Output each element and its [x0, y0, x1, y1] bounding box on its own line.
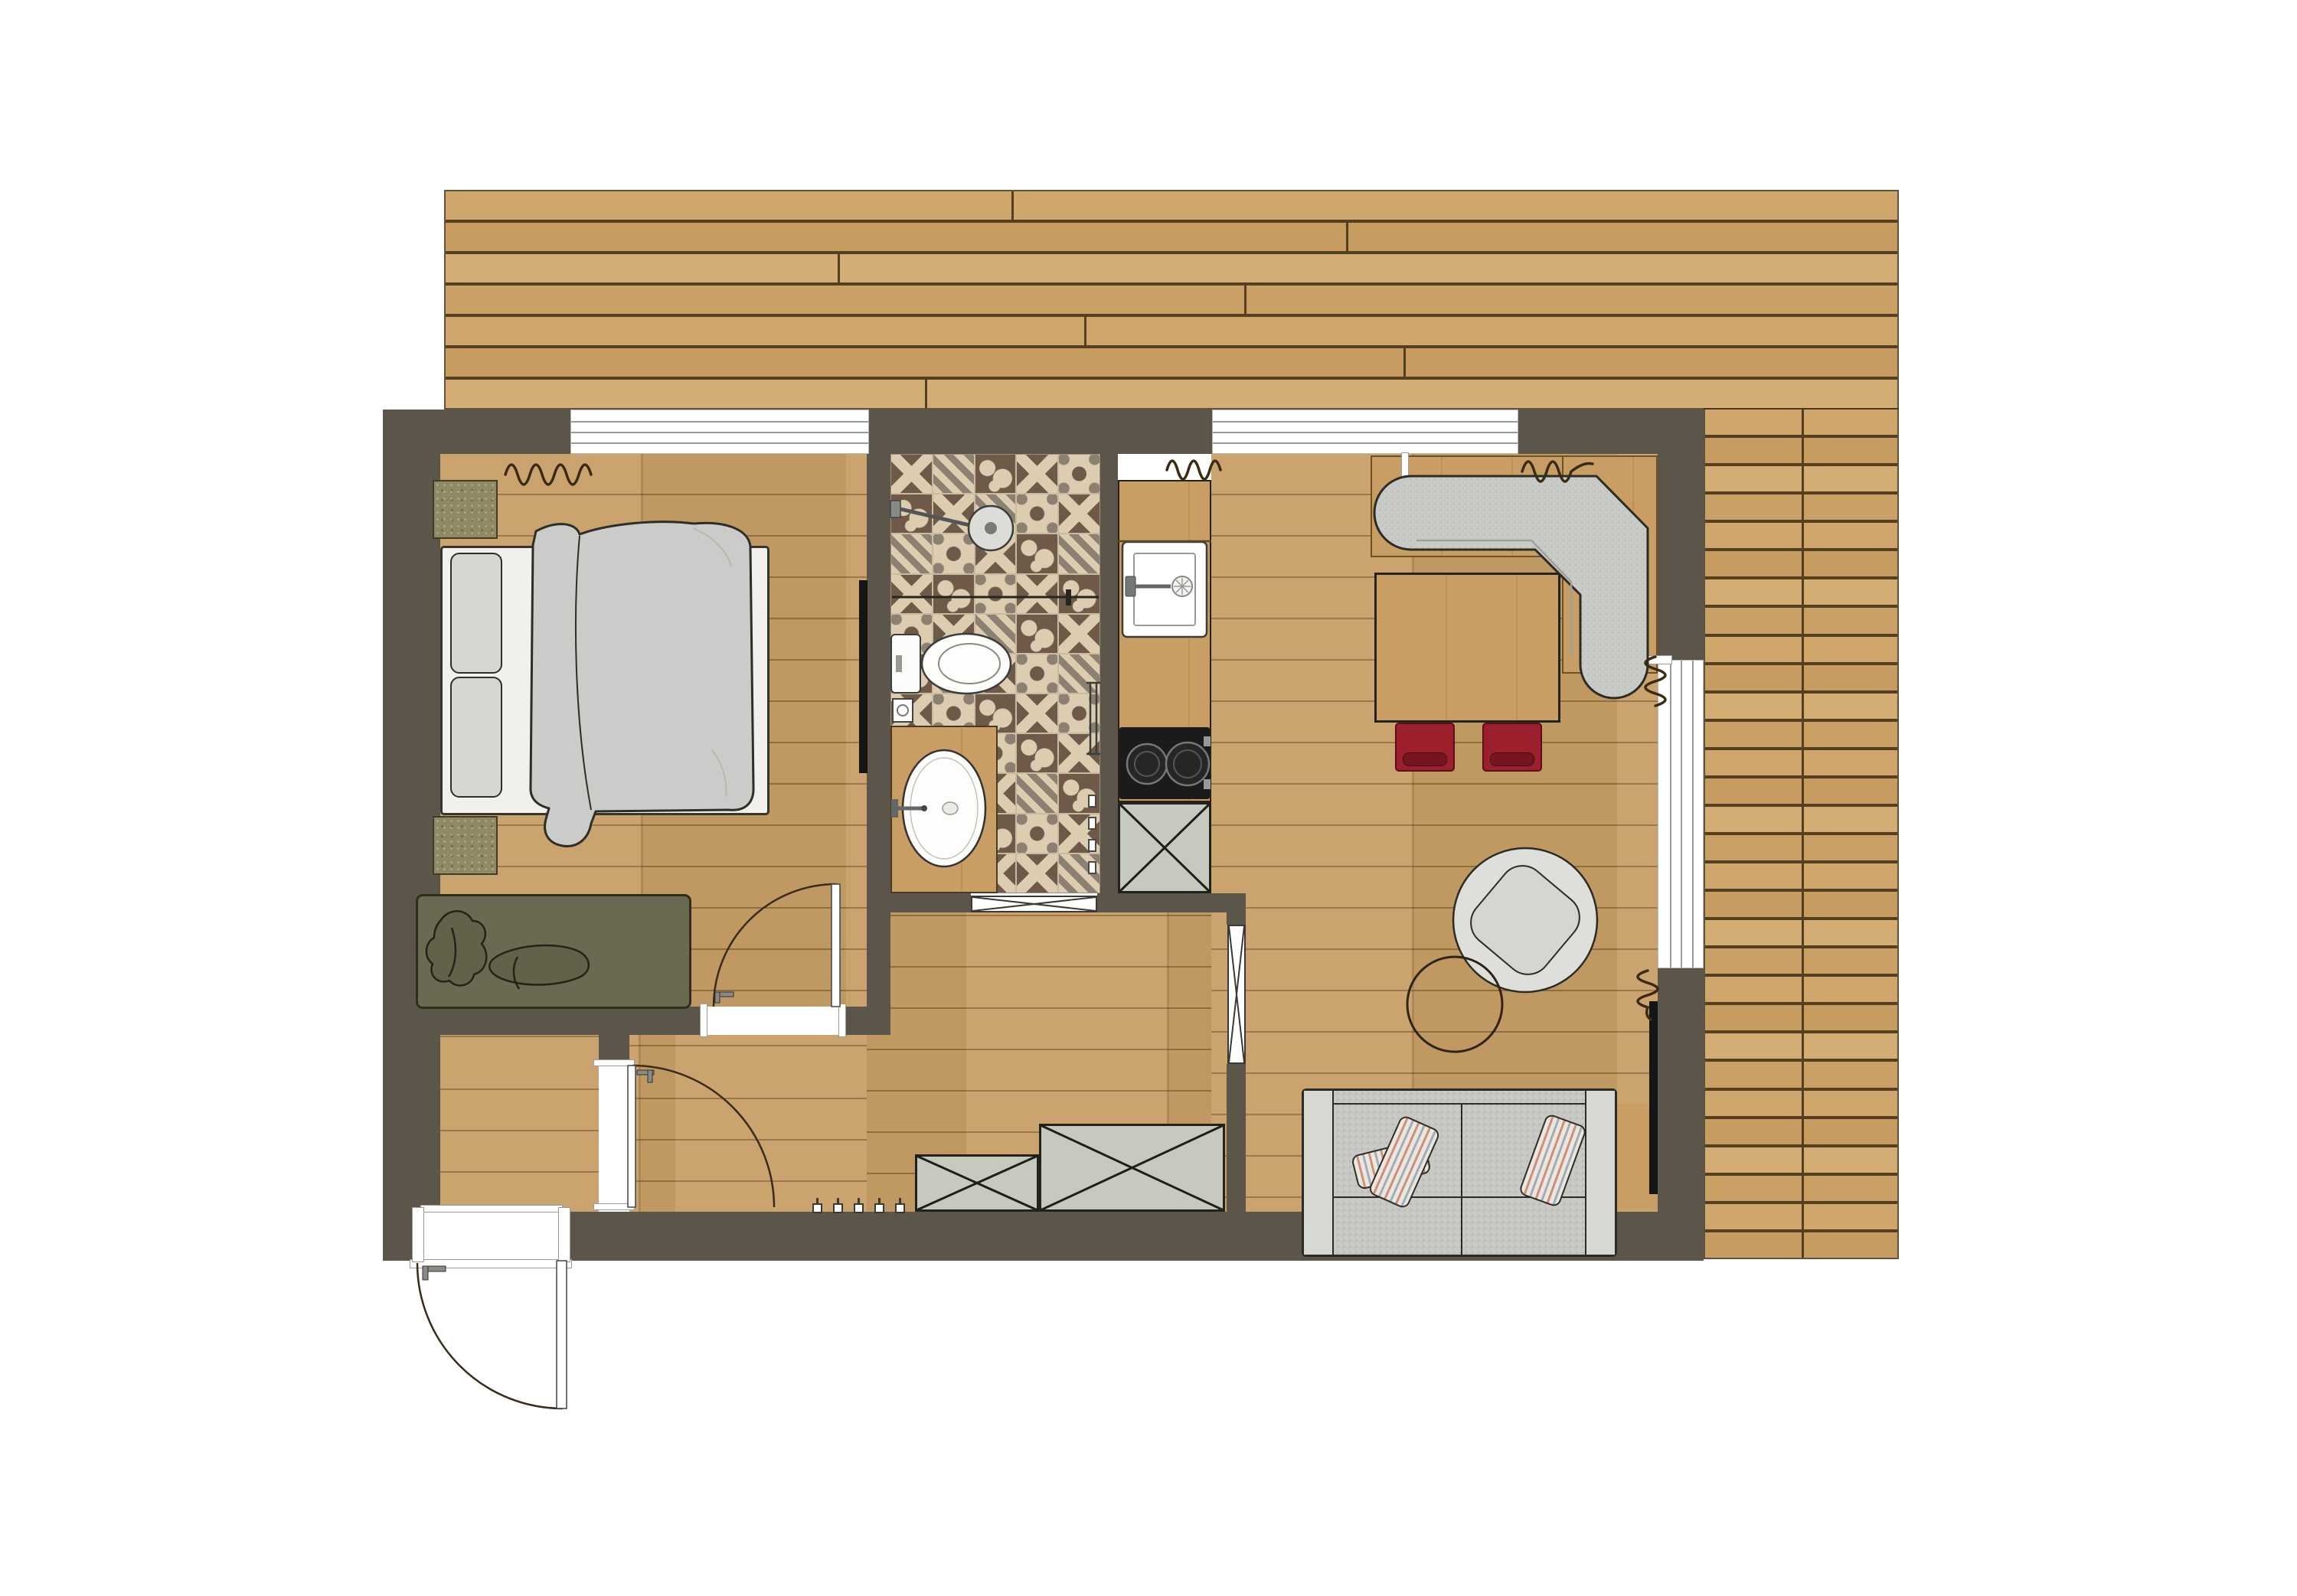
wall-left — [383, 410, 440, 1261]
deck-plank — [446, 223, 1897, 254]
terrace-deck-top — [444, 190, 1899, 410]
deck-plank — [1705, 466, 1897, 494]
wardrobe-large — [1039, 1124, 1225, 1212]
bathroom-tile — [933, 494, 974, 533]
bathroom-tile — [975, 654, 1016, 693]
deck-plank — [1705, 1062, 1897, 1090]
deck-plank — [1705, 494, 1897, 523]
deck-plank — [1705, 579, 1897, 608]
shower-shelf-item — [1088, 795, 1096, 808]
deck-plank — [1705, 694, 1897, 722]
bathroom-tile — [891, 575, 932, 613]
entry-door-jamb-right — [558, 1207, 570, 1262]
window-mullion-bench — [1401, 452, 1409, 481]
wall-bedroom-south-a — [383, 1007, 706, 1035]
deck-plank — [1705, 1091, 1897, 1119]
entry-door-jamb-left — [412, 1207, 424, 1262]
bedroom-door-opening — [706, 1007, 840, 1035]
deck-plank — [1705, 1033, 1897, 1062]
bathroom-tile — [1017, 814, 1057, 853]
deck-plank — [1705, 438, 1897, 466]
hall-door-opening — [599, 1066, 629, 1207]
nightstand-lower — [433, 816, 498, 875]
kitchen-base-cabinet — [1118, 802, 1211, 893]
bedroom-door-jamb-left — [700, 1004, 707, 1037]
bathroom-tile — [975, 494, 1016, 533]
deck-plank — [1705, 1176, 1897, 1204]
deck-plank — [1705, 1005, 1897, 1033]
coat-hook — [895, 1203, 905, 1213]
wall-kitchen-south — [1116, 893, 1227, 912]
bathroom-tile — [891, 654, 932, 693]
bathroom-tile — [1017, 575, 1057, 613]
wardrobe-small — [915, 1154, 1039, 1212]
wall-top-a — [383, 410, 570, 454]
shower-shelf-item — [1088, 861, 1096, 874]
hall-door-jamb-bottom — [593, 1203, 635, 1210]
coat-hook — [874, 1203, 884, 1213]
wall-bathroom-south-a — [890, 893, 971, 912]
bathroom-tile — [891, 615, 932, 653]
bathroom-tile — [1017, 854, 1057, 893]
deck-plank — [446, 286, 1897, 317]
bathroom-tile — [1059, 654, 1099, 693]
bathroom-tile — [1017, 455, 1057, 493]
entry-door-opening — [419, 1212, 563, 1261]
bathroom-vanity — [890, 726, 998, 893]
deck-plank — [1705, 551, 1897, 579]
deck-plank — [1705, 637, 1897, 665]
shower-shelf-item — [1088, 817, 1096, 830]
bedroom-tv — [859, 580, 868, 773]
bathroom-sliding-door — [971, 896, 1097, 912]
dressing-floor-a — [629, 1035, 867, 1212]
deck-plank — [1705, 410, 1897, 438]
deck-plank — [1705, 665, 1897, 694]
deck-plank — [1705, 920, 1897, 948]
window-sill-right — [1639, 655, 1672, 664]
coat-hook — [812, 1203, 822, 1213]
deck-plank — [1705, 608, 1897, 636]
wall-top-b — [869, 410, 1212, 454]
terrace-deck-right — [1704, 408, 1899, 1259]
wall-right-upper — [1658, 410, 1704, 660]
entry-door-sill-outer — [410, 1259, 572, 1268]
deck-plank — [1705, 1204, 1897, 1232]
window-kitchen-dining — [1212, 410, 1518, 454]
bathroom-tile — [933, 654, 974, 693]
hall-door-jamb-top — [593, 1059, 635, 1066]
bathroom-tile — [891, 534, 932, 573]
wall-bathroom-left — [867, 454, 890, 1035]
bathroom-tile — [1059, 455, 1099, 493]
bathroom-tile — [1017, 734, 1057, 772]
bathroom-tile — [1017, 534, 1057, 573]
deck-plank — [1705, 835, 1897, 863]
deck-plank — [446, 317, 1897, 348]
sofa-armrest-right — [1586, 1091, 1615, 1255]
bathroom-tile — [1017, 694, 1057, 733]
deck-plank — [1705, 807, 1897, 835]
deck-plank — [446, 380, 1897, 408]
deck-plank — [446, 254, 1897, 286]
bathroom-tile — [1017, 615, 1057, 653]
bathroom-tile — [1059, 694, 1099, 733]
deck-plank — [1705, 1232, 1897, 1258]
deck-plank — [1705, 722, 1897, 750]
bathroom-tile — [933, 615, 974, 653]
wall-divider-bottom — [1227, 1064, 1246, 1212]
wall-bathroom-south-b — [1097, 893, 1118, 912]
bathroom-tile — [1017, 654, 1057, 693]
bathroom-tile — [1017, 774, 1057, 812]
window-living-right — [1658, 660, 1704, 968]
deck-plank — [1705, 1119, 1897, 1147]
bathroom-tile — [1059, 534, 1099, 573]
coat-hook — [833, 1203, 843, 1213]
entry-door-sill-inner — [420, 1205, 563, 1213]
deck-plank — [1705, 863, 1897, 892]
entry-door — [417, 1261, 567, 1408]
dining-table — [1374, 573, 1560, 723]
clothes-bench — [416, 894, 691, 1009]
bed-pillow-1 — [450, 553, 502, 674]
bathroom-tile — [1059, 575, 1099, 613]
deck-plank — [1705, 778, 1897, 807]
dining-chair-1 — [1395, 723, 1455, 772]
deck-plank — [1705, 892, 1897, 920]
living-sliding-door — [1227, 925, 1246, 1064]
wall-divider-top — [1227, 893, 1246, 925]
cooktop — [1119, 727, 1210, 799]
bathroom-tile — [933, 534, 974, 573]
bathroom-tile — [975, 615, 1016, 653]
wall-bathroom-right — [1100, 454, 1118, 912]
bathroom-tile — [933, 575, 974, 613]
bathroom-tile — [975, 575, 1016, 613]
deck-plank — [446, 348, 1897, 380]
bathroom-tile — [1017, 494, 1057, 533]
dining-platform-right — [1562, 455, 1658, 674]
bathroom-tile — [975, 534, 1016, 573]
deck-plank — [1705, 523, 1897, 551]
window-bedroom — [570, 410, 869, 454]
shower-shelf-item — [1088, 839, 1096, 852]
bed-pillow-2 — [450, 677, 502, 798]
dining-chair-2 — [1482, 723, 1542, 772]
bathroom-tile — [1059, 494, 1099, 533]
bathroom-tile — [975, 455, 1016, 493]
bathroom-tile — [891, 494, 932, 533]
bathroom-tile — [933, 455, 974, 493]
bedroom-door-jamb-right — [838, 1004, 846, 1037]
deck-plank — [1705, 948, 1897, 977]
living-tv — [1649, 1001, 1658, 1194]
sofa-armrest-left — [1304, 1091, 1332, 1255]
entry-floor — [440, 1035, 599, 1212]
deck-plank — [446, 191, 1897, 223]
deck-plank — [1705, 750, 1897, 778]
nightstand-upper — [433, 480, 498, 539]
floor-plan — [0, 0, 2297, 1596]
deck-plank — [1705, 977, 1897, 1005]
coat-hook — [854, 1203, 864, 1213]
bathroom-tile — [1059, 615, 1099, 653]
bathroom-tile — [891, 455, 932, 493]
deck-plank — [1705, 1147, 1897, 1176]
bathroom-tile — [1059, 734, 1099, 772]
